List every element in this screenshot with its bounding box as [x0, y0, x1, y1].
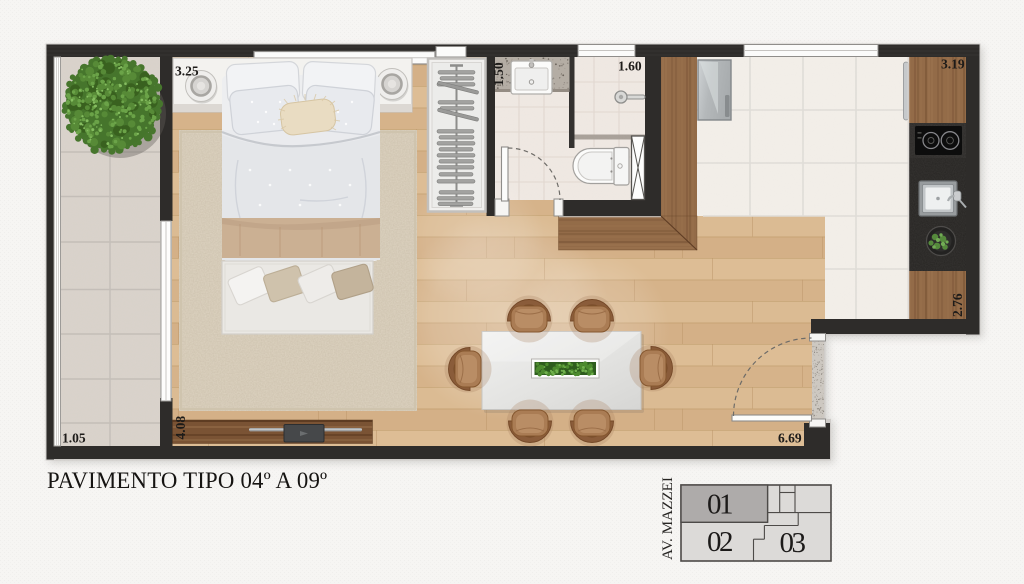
svg-text:01: 01 — [707, 489, 732, 521]
svg-text:1.05: 1.05 — [62, 431, 86, 446]
svg-text:1.60: 1.60 — [618, 59, 642, 74]
svg-text:PAVIMENTO TIPO 04º A 09º: PAVIMENTO TIPO 04º A 09º — [47, 468, 327, 493]
svg-text:1.50: 1.50 — [491, 62, 506, 86]
svg-text:3.25: 3.25 — [175, 64, 199, 79]
svg-text:3.19: 3.19 — [941, 57, 965, 72]
svg-text:03: 03 — [780, 527, 806, 559]
svg-text:4.08: 4.08 — [173, 416, 188, 440]
svg-text:2.76: 2.76 — [950, 293, 965, 317]
svg-text:AV. MAZZEI: AV. MAZZEI — [659, 477, 676, 560]
svg-text:02: 02 — [707, 526, 732, 558]
svg-text:6.69: 6.69 — [778, 431, 802, 446]
